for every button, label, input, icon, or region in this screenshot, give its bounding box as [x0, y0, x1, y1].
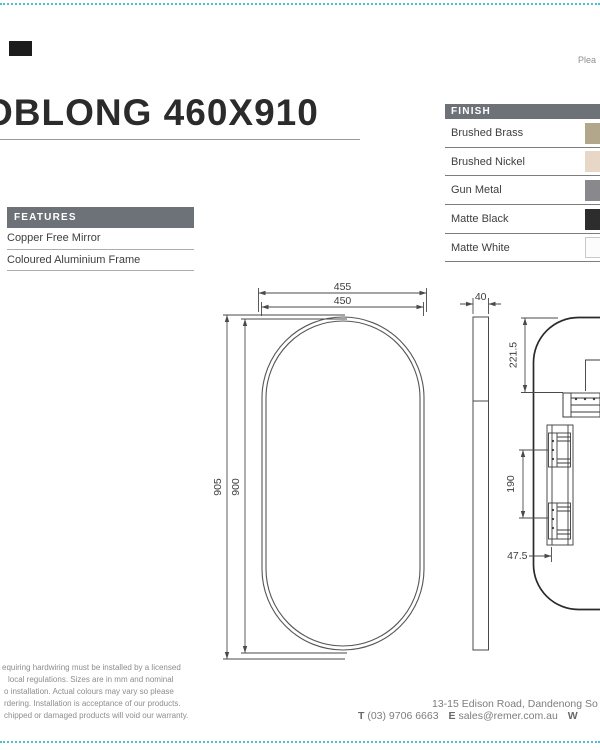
finish-section: FINISH Brushed Brass Brushed Nickel Gun …: [445, 104, 600, 262]
top-right-note: Plea: [578, 55, 596, 65]
disclaimer-line: equiring hardwiring must be installed by…: [2, 662, 232, 674]
contact-address: 13-15 Edison Road, Dandenong So: [432, 698, 598, 710]
finish-swatch-matte-black: [585, 209, 600, 230]
finish-option-label: Matte White: [451, 242, 510, 254]
dim-front-height-inner: 900: [230, 478, 242, 496]
finish-option: Matte Black: [445, 205, 600, 234]
phone-number: (03) 9706 6663: [367, 710, 438, 722]
top-crop-line: [0, 3, 600, 5]
finish-option-label: Brushed Brass: [451, 127, 523, 139]
front-view-mirror-outline: [262, 317, 424, 650]
mounting-rail: [547, 425, 573, 545]
features-header: FEATURES: [7, 207, 194, 228]
side-view-profile: [473, 317, 489, 650]
dim-rear-hole-spacing: 190: [505, 475, 517, 493]
contact-details: T (03) 9706 6663 E sales@remer.com.au W: [358, 710, 578, 722]
title-underline: [0, 139, 360, 140]
feature-item: Coloured Aluminium Frame: [7, 250, 194, 272]
mounting-bracket-top: [563, 360, 600, 417]
disclaimer-line: chipped or damaged products will void ou…: [2, 710, 232, 722]
disclaimer-line: local regulations. Sizes are in mm and n…: [2, 674, 232, 686]
technical-drawing: 455 450 905 900 40 221.5 190 47.5: [195, 275, 600, 665]
finish-header: FINISH: [445, 104, 600, 119]
finish-option-label: Gun Metal: [451, 184, 502, 196]
finish-swatch-brushed-brass: [585, 123, 600, 144]
email-address: sales@remer.com.au: [458, 710, 557, 722]
dim-front-width-outer: 455: [334, 281, 352, 293]
finish-option-label: Brushed Nickel: [451, 156, 525, 168]
dim-rear-edge-offset: 47.5: [507, 550, 528, 562]
rear-view-outline: [534, 318, 600, 610]
dim-side-depth: 40: [475, 291, 487, 303]
disclaimer-line: o installation. Actual colours may vary …: [2, 686, 232, 698]
disclaimer-text: equiring hardwiring must be installed by…: [2, 662, 232, 722]
web-label: W: [568, 710, 578, 722]
finish-swatch-matte-white: [585, 237, 600, 258]
finish-option: Brushed Nickel: [445, 148, 600, 177]
product-title: OBLONG 460X910: [0, 92, 319, 134]
finish-option-label: Matte Black: [451, 213, 508, 225]
email-label: E: [449, 710, 456, 722]
finish-swatch-brushed-nickel: [585, 151, 600, 172]
dim-front-width-inner: 450: [334, 295, 352, 307]
features-section: FEATURES Copper Free Mirror Coloured Alu…: [7, 207, 194, 271]
feature-item: Copper Free Mirror: [7, 228, 194, 250]
finish-option: Matte White: [445, 234, 600, 263]
finish-option: Gun Metal: [445, 176, 600, 205]
corner-badge: [9, 41, 32, 56]
phone-label: T: [358, 710, 364, 722]
finish-option: Brushed Brass: [445, 119, 600, 148]
disclaimer-line: rdering. Installation is acceptance of o…: [2, 698, 232, 710]
bottom-crop-line: [0, 741, 600, 743]
finish-swatch-gun-metal: [585, 180, 600, 201]
dim-rear-top-offset: 221.5: [508, 342, 520, 368]
dim-front-height-outer: 905: [212, 478, 224, 496]
